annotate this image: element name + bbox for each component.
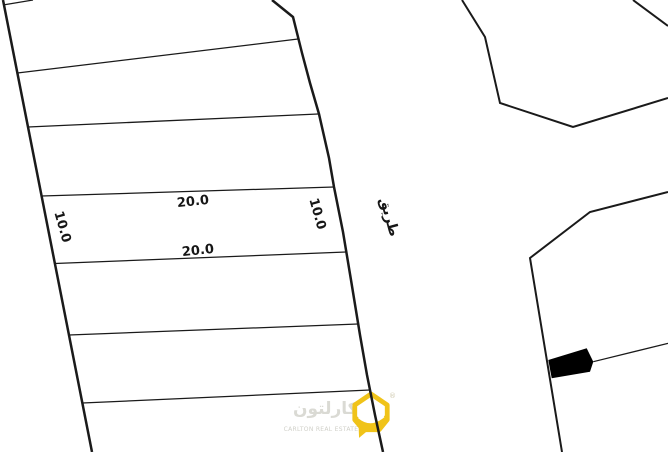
road-label: طريق: [376, 196, 402, 239]
parcel-left-boundary-line: [3, 0, 92, 452]
parcel-boundaries-svg: [0, 0, 668, 452]
neighbour-parcel-right-line: [530, 192, 668, 452]
strip-divider-line: [17, 39, 298, 73]
annex-structure-outline: [548, 348, 593, 378]
watermark-arabic-brand: كارلتون: [293, 399, 357, 419]
parcel-top-edge-line: [3, 0, 33, 5]
watermark-english-brand: CARLTON REAL ESTATE: [282, 426, 360, 433]
strip-divider-line: [69, 324, 358, 335]
dimension-label-bottom-width: 20.0: [181, 242, 214, 260]
carlton-logo-icon: [350, 391, 392, 439]
annex-connector-line: [593, 343, 668, 361]
strip-divider-line: [28, 114, 318, 127]
cadastral-plot-map: كارلتون CARLTON REAL ESTATE ® 20.0 20.0 …: [0, 0, 668, 452]
dimension-label-right-depth: 10.0: [305, 197, 328, 232]
neighbour-parcel-top-right-line: [462, 0, 668, 127]
dimension-label-left-depth: 10.0: [50, 210, 73, 245]
dimension-label-top-width: 20.0: [176, 193, 209, 211]
registered-trademark-icon: ®: [389, 392, 396, 400]
neighbour-parcel-top-corner-line: [633, 0, 668, 26]
